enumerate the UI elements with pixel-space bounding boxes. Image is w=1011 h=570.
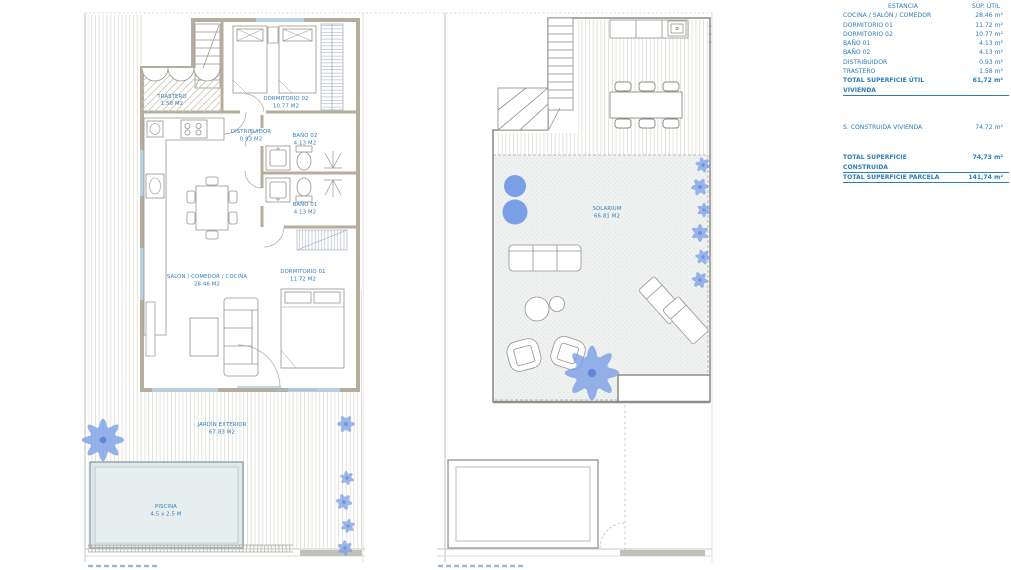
roof-plan: SOLARIUM 66.81 M2: [437, 13, 713, 566]
planter-icon: [503, 200, 528, 225]
room-label-salon: SALÓN / COMEDOR / COCINA: [167, 273, 248, 280]
svg-text:1.58 M2: 1.58 M2: [161, 101, 183, 107]
column-header-estancia: ESTANCIA: [843, 2, 963, 11]
coffee-table-symbol: [190, 318, 218, 356]
pool-outline: [448, 460, 598, 548]
svg-text:11.72 M2: 11.72 M2: [290, 277, 316, 283]
svg-text:10.77 M2: 10.77 M2: [273, 104, 299, 110]
room-label-jardin: JARDÍN EXTERIOR: [197, 421, 247, 428]
svg-text:67.83 M2: 67.83 M2: [209, 430, 235, 436]
plant-icon: [82, 419, 125, 462]
room-label-bano02: BAÑO 02: [293, 132, 318, 139]
dining-table-symbol: [610, 82, 682, 128]
sofa-symbol: [509, 245, 581, 271]
floorplan-sheet: TRASTERO 1.58 M2 DORMITORIO 02 10.77 M2 …: [0, 0, 1011, 570]
door-swing: [600, 523, 625, 548]
planter-icon: [504, 175, 526, 197]
area-row: TRASTERO1.58 m²: [843, 67, 1009, 76]
single-bed-symbol: [279, 26, 316, 93]
louver-vent-symbol: [297, 230, 347, 250]
room-label-solarium: SOLARIUM: [592, 206, 621, 212]
areas-table-header: ESTANCIA SUP. ÚTIL: [843, 2, 1009, 11]
total-util-row: TOTAL SUPERFICIE ÚTIL VIVIENDA61,72 m²: [843, 76, 1009, 96]
svg-text:0.93 M2: 0.93 M2: [240, 137, 262, 143]
room-label-trastero: TRASTERO: [156, 94, 186, 100]
total-constructed-row: TOTAL SUPERFICIE CONSTRUIDA74,73 m²: [843, 153, 1009, 173]
svg-text:4.13 M2: 4.13 M2: [294, 141, 316, 147]
area-row: BAÑO 014.13 m²: [843, 39, 1009, 48]
room-label-bano01: BAÑO 01: [293, 201, 318, 208]
svg-text:4.5 x 2.5 M: 4.5 x 2.5 M: [150, 512, 182, 518]
room-label-dormitorio02: DORMITORIO 02: [263, 96, 308, 102]
wardrobe-symbol: [321, 24, 343, 110]
room-label-piscina: PISCINA: [155, 504, 177, 510]
plant-icon: [565, 346, 619, 400]
double-bed-symbol: [281, 289, 344, 368]
stairs-symbol: [498, 18, 573, 130]
svg-text:28.46 M2: 28.46 M2: [194, 282, 220, 288]
room-label-distribuidor: DISTRIBUIDOR: [231, 129, 271, 135]
svg-text:4.13 M2: 4.13 M2: [294, 210, 316, 216]
area-row: COCINA / SALÓN / COMEDOR28.46 m²: [843, 11, 1009, 20]
area-row: DORMITORIO 0111.72 m²: [843, 21, 1009, 30]
column-header-sup-util: SUP. ÚTIL: [963, 2, 1009, 11]
area-row: BAÑO 024.13 m²: [843, 48, 1009, 57]
room-label-dormitorio01: DORMITORIO 01: [280, 269, 325, 275]
total-plot-row: TOTAL SUPERFICIE PARCELA141,74 m²: [843, 173, 1009, 183]
areas-table: ESTANCIA SUP. ÚTIL COCINA / SALÓN / COME…: [843, 2, 1009, 183]
single-bed-symbol: [233, 26, 267, 93]
area-row: DORMITORIO 0210.77 m²: [843, 30, 1009, 39]
area-row: DISTRIBUIDOR0.93 m²: [843, 58, 1009, 67]
tv-unit-symbol: [146, 302, 155, 356]
sofa-symbol: [224, 298, 258, 376]
nightstand-symbol: [268, 27, 278, 43]
svg-text:66.81 M2: 66.81 M2: [594, 214, 620, 220]
constructed-area-row: S. CONSTRUIDA VIVIENDA74.72 m²: [843, 123, 1009, 132]
bench-counter-symbol: [610, 20, 688, 38]
